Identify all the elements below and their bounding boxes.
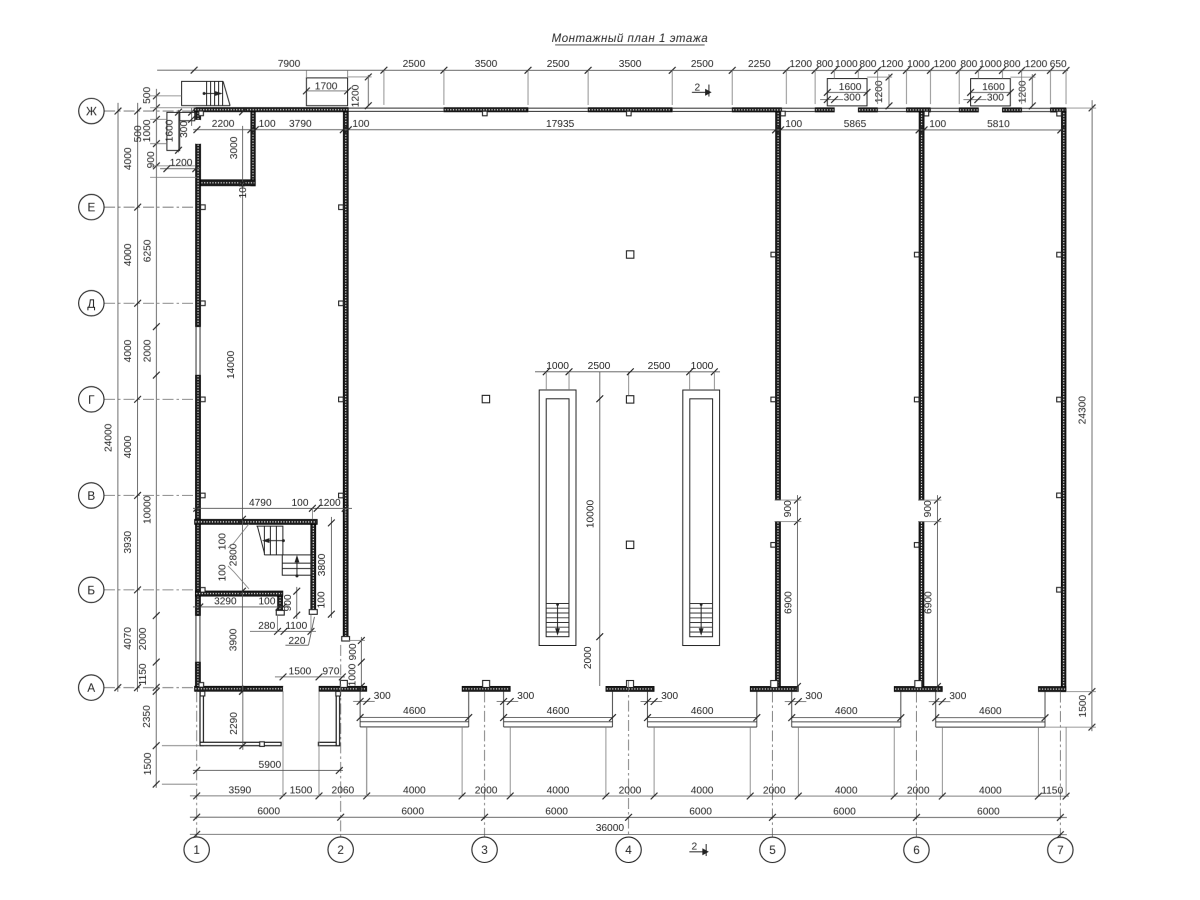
svg-text:Д: Д bbox=[87, 297, 95, 311]
svg-text:1600: 1600 bbox=[982, 82, 1005, 93]
svg-text:Монтажный план 1 этажа: Монтажный план 1 этажа bbox=[552, 33, 709, 45]
svg-text:6: 6 bbox=[913, 843, 920, 857]
svg-text:5900: 5900 bbox=[259, 760, 282, 771]
svg-text:В: В bbox=[87, 489, 95, 503]
svg-text:650: 650 bbox=[1050, 59, 1067, 70]
svg-text:900: 900 bbox=[923, 500, 934, 517]
svg-text:Г: Г bbox=[88, 393, 95, 407]
svg-text:4600: 4600 bbox=[403, 706, 426, 717]
svg-text:6000: 6000 bbox=[545, 807, 568, 818]
svg-text:5810: 5810 bbox=[987, 119, 1010, 130]
svg-text:4600: 4600 bbox=[547, 706, 570, 717]
svg-text:3500: 3500 bbox=[475, 59, 498, 70]
svg-text:2500: 2500 bbox=[648, 361, 671, 372]
svg-text:5: 5 bbox=[769, 843, 776, 857]
svg-text:1200: 1200 bbox=[351, 84, 362, 107]
svg-text:100: 100 bbox=[929, 119, 946, 130]
svg-text:3930: 3930 bbox=[123, 531, 134, 554]
svg-text:2000: 2000 bbox=[619, 785, 642, 796]
svg-text:Б: Б bbox=[87, 583, 95, 597]
svg-text:4000: 4000 bbox=[123, 243, 134, 266]
svg-text:1200: 1200 bbox=[1025, 59, 1048, 70]
svg-text:1200: 1200 bbox=[789, 59, 812, 70]
svg-text:280: 280 bbox=[258, 621, 275, 632]
svg-text:4000: 4000 bbox=[123, 435, 134, 458]
svg-text:300: 300 bbox=[179, 121, 190, 138]
svg-text:1500: 1500 bbox=[143, 752, 154, 775]
svg-text:3790: 3790 bbox=[289, 119, 312, 130]
svg-text:1000: 1000 bbox=[979, 59, 1002, 70]
svg-text:1000: 1000 bbox=[348, 663, 359, 686]
svg-text:900: 900 bbox=[348, 643, 359, 660]
svg-text:5865: 5865 bbox=[844, 119, 867, 130]
svg-text:100: 100 bbox=[785, 119, 802, 130]
svg-text:1500: 1500 bbox=[289, 666, 312, 677]
svg-text:1000: 1000 bbox=[691, 361, 714, 372]
svg-text:6000: 6000 bbox=[689, 807, 712, 818]
svg-text:800: 800 bbox=[859, 59, 876, 70]
svg-text:2350: 2350 bbox=[142, 705, 153, 728]
svg-text:6000: 6000 bbox=[833, 807, 856, 818]
svg-text:800: 800 bbox=[1004, 59, 1021, 70]
svg-text:300: 300 bbox=[805, 691, 822, 702]
svg-text:3500: 3500 bbox=[619, 59, 642, 70]
svg-text:2000: 2000 bbox=[907, 786, 930, 797]
svg-text:2500: 2500 bbox=[547, 59, 570, 70]
svg-text:300: 300 bbox=[949, 691, 966, 702]
svg-text:1150: 1150 bbox=[138, 663, 149, 685]
svg-text:2500: 2500 bbox=[691, 59, 714, 70]
svg-text:4070: 4070 bbox=[123, 627, 134, 650]
svg-text:2000: 2000 bbox=[475, 785, 498, 796]
svg-text:1200: 1200 bbox=[170, 158, 193, 169]
svg-text:1600: 1600 bbox=[165, 119, 176, 142]
svg-text:6000: 6000 bbox=[977, 807, 1000, 818]
svg-text:100: 100 bbox=[217, 564, 228, 581]
svg-text:2000: 2000 bbox=[142, 339, 153, 362]
svg-text:1500: 1500 bbox=[290, 785, 313, 796]
svg-text:1000: 1000 bbox=[835, 59, 858, 70]
svg-text:4000: 4000 bbox=[979, 786, 1002, 797]
svg-text:100: 100 bbox=[217, 533, 228, 550]
svg-text:1600: 1600 bbox=[839, 82, 862, 93]
svg-text:2: 2 bbox=[692, 842, 698, 853]
svg-text:300: 300 bbox=[661, 691, 678, 702]
svg-text:3590: 3590 bbox=[229, 785, 252, 796]
svg-text:7900: 7900 bbox=[278, 59, 301, 70]
svg-text:300: 300 bbox=[517, 691, 534, 702]
svg-text:2060: 2060 bbox=[332, 785, 355, 796]
svg-text:1200: 1200 bbox=[318, 498, 341, 509]
svg-text:3290: 3290 bbox=[214, 596, 237, 607]
svg-text:100: 100 bbox=[258, 596, 275, 607]
svg-text:4: 4 bbox=[625, 843, 632, 857]
svg-text:900: 900 bbox=[283, 594, 294, 611]
svg-text:6900: 6900 bbox=[783, 591, 794, 614]
svg-text:4000: 4000 bbox=[403, 785, 426, 796]
svg-text:24000: 24000 bbox=[103, 423, 114, 452]
svg-text:1: 1 bbox=[193, 843, 200, 857]
svg-text:2: 2 bbox=[337, 843, 344, 857]
svg-text:2500: 2500 bbox=[588, 361, 611, 372]
svg-text:300: 300 bbox=[374, 691, 391, 702]
svg-text:1000: 1000 bbox=[546, 361, 569, 372]
svg-text:1700: 1700 bbox=[315, 81, 338, 92]
svg-text:3: 3 bbox=[481, 843, 488, 857]
svg-text:17935: 17935 bbox=[546, 119, 575, 130]
svg-text:2200: 2200 bbox=[212, 119, 235, 130]
svg-text:2500: 2500 bbox=[403, 59, 426, 70]
svg-text:2: 2 bbox=[694, 82, 700, 93]
svg-text:4790: 4790 bbox=[249, 498, 272, 509]
svg-text:4000: 4000 bbox=[123, 339, 134, 362]
svg-text:14000: 14000 bbox=[226, 350, 237, 379]
svg-text:10000: 10000 bbox=[585, 500, 596, 529]
svg-text:6900: 6900 bbox=[923, 591, 934, 614]
svg-text:1000: 1000 bbox=[907, 59, 930, 70]
svg-text:800: 800 bbox=[960, 59, 977, 70]
svg-text:2290: 2290 bbox=[229, 712, 240, 735]
svg-text:970: 970 bbox=[322, 666, 339, 677]
svg-text:300: 300 bbox=[987, 93, 1004, 104]
svg-text:3900: 3900 bbox=[228, 628, 239, 651]
svg-text:24300: 24300 bbox=[1078, 396, 1089, 425]
svg-text:6000: 6000 bbox=[401, 807, 424, 818]
svg-text:900: 900 bbox=[783, 500, 794, 517]
svg-text:Е: Е bbox=[87, 201, 95, 215]
svg-text:100: 100 bbox=[238, 181, 249, 198]
svg-text:10000: 10000 bbox=[143, 495, 154, 524]
svg-text:6250: 6250 bbox=[143, 239, 154, 262]
svg-text:36000: 36000 bbox=[596, 823, 625, 834]
svg-text:1100: 1100 bbox=[285, 621, 307, 632]
svg-text:А: А bbox=[87, 681, 95, 695]
svg-text:300: 300 bbox=[844, 93, 861, 104]
svg-text:2000: 2000 bbox=[763, 785, 786, 796]
svg-text:100: 100 bbox=[352, 119, 369, 130]
svg-text:4000: 4000 bbox=[123, 147, 134, 170]
svg-text:1500: 1500 bbox=[1078, 695, 1089, 718]
svg-text:1200: 1200 bbox=[933, 59, 956, 70]
svg-text:2000: 2000 bbox=[138, 627, 149, 650]
svg-text:2250: 2250 bbox=[748, 59, 771, 70]
svg-text:Ж: Ж bbox=[86, 104, 97, 118]
svg-text:6000: 6000 bbox=[257, 807, 280, 818]
svg-text:2000: 2000 bbox=[583, 646, 594, 669]
svg-text:100: 100 bbox=[259, 119, 276, 130]
svg-text:4000: 4000 bbox=[691, 785, 714, 796]
svg-text:4600: 4600 bbox=[979, 706, 1002, 717]
svg-text:100: 100 bbox=[316, 591, 327, 608]
svg-text:3800: 3800 bbox=[317, 553, 328, 576]
svg-text:1200: 1200 bbox=[881, 59, 904, 70]
svg-text:1200: 1200 bbox=[874, 80, 885, 103]
svg-text:4000: 4000 bbox=[547, 785, 570, 796]
svg-text:500: 500 bbox=[133, 125, 144, 142]
svg-text:800: 800 bbox=[816, 59, 833, 70]
svg-text:1200: 1200 bbox=[1018, 80, 1029, 103]
svg-text:4600: 4600 bbox=[691, 706, 714, 717]
svg-text:3000: 3000 bbox=[229, 136, 240, 159]
svg-text:500: 500 bbox=[142, 87, 153, 104]
svg-text:7: 7 bbox=[1057, 843, 1064, 857]
svg-text:100: 100 bbox=[291, 498, 308, 509]
svg-text:1150: 1150 bbox=[1041, 786, 1063, 797]
svg-text:4000: 4000 bbox=[835, 785, 858, 796]
svg-text:4600: 4600 bbox=[835, 706, 858, 717]
